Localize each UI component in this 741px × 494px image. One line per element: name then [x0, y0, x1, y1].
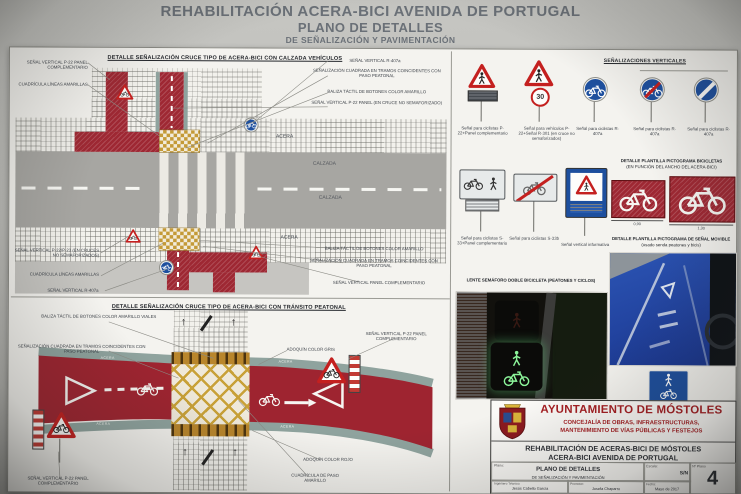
- dimension-small: 0,90: [611, 222, 663, 227]
- bike-stencil-large: [669, 176, 735, 222]
- plano-name: PLANO DE DETALLES: [492, 467, 644, 474]
- sign-pole: [59, 439, 60, 463]
- sign-pole: [481, 99, 482, 121]
- semaforo-title: LENTE SEMÁFORO DOBLE BICICLETA (PEATONES…: [453, 277, 609, 283]
- photo-lane-markings: [610, 253, 736, 366]
- sign-caption: Señal para ciclistas S-33b: [509, 236, 559, 241]
- label-baliza-viales: BALIZA TÁCTIL DE BOTONES COLOR AMARILLO …: [39, 314, 159, 320]
- label-adoquin-rojo: ADOQUÍN COLOR ROJO: [303, 457, 383, 463]
- tactile-stud-band-top: [172, 352, 250, 364]
- red-tee-top-stem: [106, 72, 128, 132]
- photo-blue-bike-lane: [609, 252, 737, 367]
- org-dept1: CONCEJALÍA DE OBRAS, INFRAESTRUCTURAS,: [531, 420, 731, 427]
- org-name: AYUNTAMIENTO DE MÓSTOLES: [531, 404, 731, 417]
- sign-caption: Señal para vehículos P-22+Señal R-301 (e…: [516, 126, 578, 142]
- yellow-checker-top: [160, 130, 200, 152]
- no-bike-sign-icon: [641, 78, 664, 101]
- label-senalizacion-cuadrada-2: SEÑALIZACIÓN CUADRADA EN TRAMOS COINCIDE…: [304, 258, 444, 269]
- sign-pole: [539, 105, 540, 122]
- sign-pole: [533, 200, 535, 232]
- sign-pole: [480, 209, 481, 231]
- s33-sign-icon: [459, 169, 505, 199]
- label-r407a-2: SEÑAL VERTICAL R-407a: [33, 288, 113, 294]
- bike-lane-sign-icon: [245, 118, 258, 131]
- complementary-panel-icon: [465, 199, 499, 211]
- label-adoquin-gris: ADOQUÍN COLOR GRIS: [287, 347, 357, 353]
- p22-sign-icon: [468, 63, 496, 88]
- sign-pole: [584, 216, 585, 236]
- bike-corridor-dash-top: [171, 76, 173, 128]
- fecha-cell: Fecha: Mayo de 2017: [643, 480, 691, 494]
- label-baliza-tactil: BALIZA TÁCTIL DE BOTONES COLOR AMARILLO: [310, 89, 444, 95]
- dimension-large: 1,30: [669, 226, 733, 231]
- escala-value: S/N: [644, 470, 688, 476]
- sign-caption: Señal para ciclistas R-407a: [633, 126, 677, 137]
- signal-head-upper: [495, 301, 539, 341]
- promotor-label: Promotor:: [570, 482, 584, 486]
- label-acera-top: ACERA: [265, 134, 305, 140]
- plantilla-senal-title: DETALLE PLANTILLA PICTOGRAMA DE SEÑAL MO…: [601, 236, 741, 242]
- band-label: ACERA: [279, 360, 293, 364]
- sign-caption: Señal para ciclistas R-407a: [576, 126, 620, 137]
- complementary-panel-icon: [468, 90, 498, 101]
- label-p22-cruce: SEÑAL VERTICAL P-22 PANEL (EN CRUCE NO S…: [310, 100, 444, 106]
- photo-foliage: [552, 293, 606, 399]
- warning-sign-icon: [317, 357, 347, 384]
- plantilla-bici-subtitle: (EN FUNCIÓN DEL ANCHO DEL ACERA-BICI): [607, 164, 735, 170]
- label-calzada-top: CALZADA: [301, 161, 347, 167]
- sign-caption: Señal para ciclistas R-407a: [687, 126, 731, 137]
- informative-sign-text-strip: [570, 204, 602, 213]
- sign-pole: [594, 101, 595, 122]
- title-block: AYUNTAMIENTO DE MÓSTOLES CONCEJALÍA DE O…: [490, 400, 736, 494]
- photo-traffic-light: [455, 291, 607, 400]
- plan-sheet: DETALLE SEÑALIZACIÓN CRUCE TIPO DE ACERA…: [7, 46, 738, 494]
- band-label: ACERA: [96, 422, 110, 426]
- org-dept2: MANTENIMIENTO DE VÍAS PÚBLICAS Y FESTEJO…: [531, 428, 731, 435]
- plantilla-bici-title: DETALLE PLANTILLA PICTOGRAMA BICICLETAS: [607, 158, 735, 164]
- num-value: 4: [690, 467, 735, 490]
- red-tee-bottom-stem: [213, 272, 235, 292]
- plan-title-line2: PLANO DE DETALLES: [0, 20, 741, 35]
- senda-ciclable-sign-icon: [648, 370, 688, 402]
- photo-of-plan-sheet: REHABILITACIÓN ACERA-BICI AVENIDA DE POR…: [0, 0, 741, 494]
- sign-pole: [651, 101, 652, 122]
- label-cuadricula-paso: CUADRÍCULA DE PASO AMARILLO: [280, 473, 350, 484]
- red-tee-top-bar: [75, 132, 160, 152]
- tecnico-cell: Ingeniero Técnico: Jesús Cabello García: [491, 480, 569, 494]
- tactile-stud-band-bottom: [171, 424, 249, 436]
- title-block-divider: [491, 441, 735, 443]
- striped-panel-post: [32, 410, 44, 450]
- plantilla-senal-subtitle: (usado senda peatones y bicis): [601, 242, 741, 248]
- fecha-value: Mayo de 2017: [644, 487, 690, 491]
- label-cuadricula-amarilla: CUADRÍCULA LÍNEAS AMARILLAS: [16, 81, 88, 87]
- label-r407a: SEÑAL VERTICAL R-407a: [310, 58, 440, 64]
- band-label: ACERA: [101, 356, 115, 360]
- informative-sign-inner: [570, 173, 602, 201]
- label-senalizacion-cuadrada: SEÑALIZACIÓN CUADRADA EN TRAMOS COINCIDE…: [310, 68, 444, 79]
- r407a-sign-icon: [584, 78, 607, 101]
- yellow-checker-bottom: [159, 228, 199, 250]
- sign-pole: [705, 101, 706, 122]
- end-of-lane-sign-icon: [695, 78, 718, 101]
- zebra-crossing: [159, 152, 249, 228]
- promotor-cell: Promotor: Josefa Chaparro: [567, 480, 645, 494]
- label-calzada-bottom: CALZADA: [307, 195, 353, 201]
- num-cell: Nº Plano 4: [689, 462, 736, 494]
- label-panel-complementario: SEÑAL VERTICAL PANEL COMPLEMENTARIO: [324, 280, 434, 286]
- bike-stencil-small: [611, 180, 665, 218]
- signal-head-green: [490, 343, 542, 391]
- end-slash: [695, 79, 717, 101]
- label-senal-p22-panel: SEÑAL VERTICAL P-22 PANEL COMPLEMENTARIO: [16, 59, 88, 70]
- sign-caption: Señal para ciclistas S-33+Panel compleme…: [453, 235, 511, 246]
- warning-sign-icon: [248, 245, 264, 259]
- label-baliza-tactil-2: BALIZA TÁCTIL DE BOTONES COLOR AMARILLO: [304, 246, 444, 252]
- label-senal-p22-panel-der: SEÑAL VERTICAL P-22 PANEL COMPLEMENTARIO: [354, 331, 439, 342]
- senales-title: SEÑALIZACIONES VERTICALES: [570, 58, 720, 65]
- label-senal-p22-panel-izq: SEÑAL VERTICAL P-22 PANEL COMPLEMENTARIO: [18, 475, 98, 486]
- sign-group-bracket: [640, 70, 728, 71]
- escala-label: Escala:: [646, 464, 658, 468]
- tecnico-name: Jesús Cabello García: [492, 486, 568, 490]
- plan-title-line1: REHABILITACIÓN ACERA-BICI AVENIDA DE POR…: [0, 3, 741, 20]
- speed-30-sign-icon: 30: [531, 88, 550, 107]
- label-cuadricula-amarilla-2: CUADRÍCULA LÍNEAS AMARILLAS: [13, 271, 99, 277]
- striped-panel-post: [348, 355, 360, 393]
- informative-sign-icon: [565, 168, 607, 218]
- sheet-vertical-divider: [449, 51, 452, 491]
- warning-sign-icon: [46, 412, 76, 439]
- label-acera-bottom: ACERA: [269, 235, 309, 241]
- promotor-name: Josefa Chaparro: [568, 486, 644, 490]
- sign-caption: Señal para ciclistas P-22+Panel compleme…: [454, 125, 512, 136]
- band-label: ACERA: [280, 425, 294, 429]
- warning-sign-icon: [125, 229, 141, 243]
- fecha-label: Fecha:: [646, 482, 656, 486]
- mostoles-crest-icon: [496, 404, 528, 440]
- photo-building-strip: [456, 292, 486, 398]
- bike-corridor-dash-bottom: [177, 252, 179, 288]
- yellow-lattice-crossing: [171, 364, 249, 424]
- plan-title-line3: DE SEÑALIZACIÓN Y PAVIMENTACIÓN: [0, 35, 741, 45]
- s33b-sign-icon: [513, 174, 557, 202]
- warning-sign-icon: [116, 84, 134, 100]
- p22-sign-icon: [524, 60, 554, 87]
- lane-edge-band-right: [184, 72, 188, 132]
- tecnico-label: Ingeniero Técnico:: [494, 482, 520, 486]
- label-senalizacion-cuadrada-peatonal: SEÑALIZACIÓN CUADRADA EN TRAMOS COINCIDE…: [17, 343, 147, 354]
- road-center-dash-left: [21, 186, 151, 190]
- label-p22-p23: SEÑAL VERTICAL P-22/P-23 (EN CRUCES NO S…: [13, 247, 99, 258]
- bike-lane-sign-icon: [160, 261, 173, 274]
